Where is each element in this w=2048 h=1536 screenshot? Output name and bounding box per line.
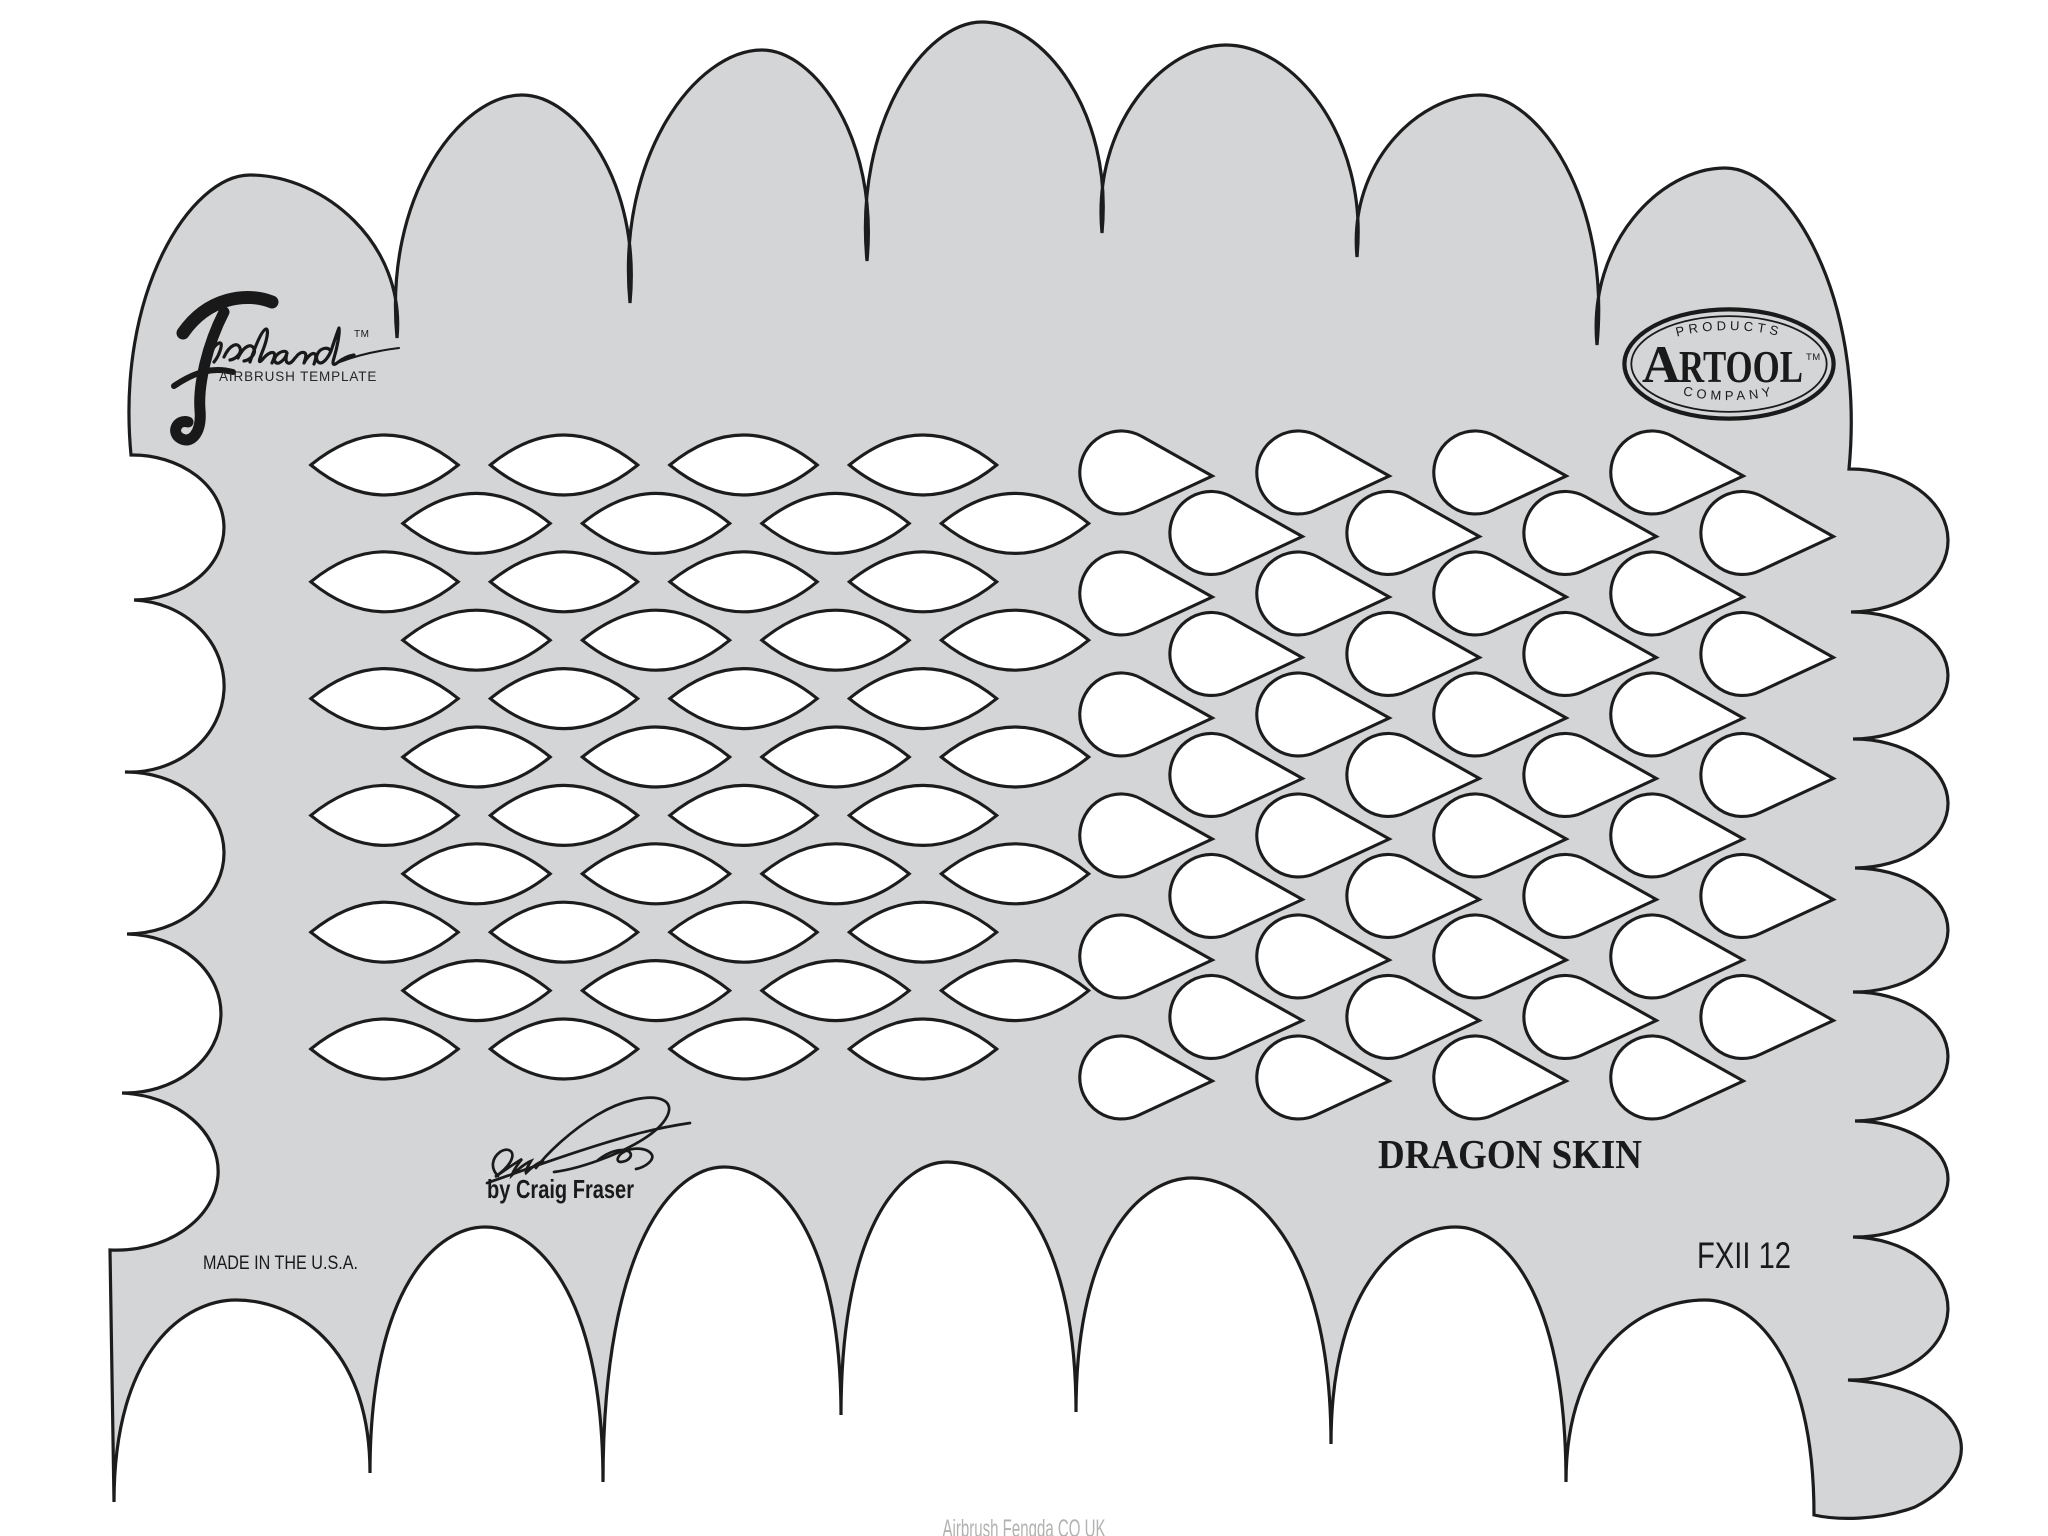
svg-text:TM: TM (1806, 352, 1821, 363)
svg-text:FXII 12: FXII 12 (1697, 1234, 1791, 1276)
svg-text:Airbrush Fengda CO UK: Airbrush Fengda CO UK (943, 1515, 1106, 1536)
svg-text:A: A (1642, 336, 1680, 394)
svg-text:DRAGON SKIN: DRAGON SKIN (1378, 1131, 1642, 1177)
svg-text:RTOOL: RTOOL (1679, 341, 1803, 392)
svg-text:MADE IN THE U.S.A.: MADE IN THE U.S.A. (203, 1253, 358, 1274)
svg-text:AIRBRUSH TEMPLATE: AIRBRUSH TEMPLATE (219, 369, 378, 384)
svg-text:by Craig Fraser: by Craig Fraser (487, 1174, 634, 1204)
svg-text:TM: TM (354, 329, 369, 340)
